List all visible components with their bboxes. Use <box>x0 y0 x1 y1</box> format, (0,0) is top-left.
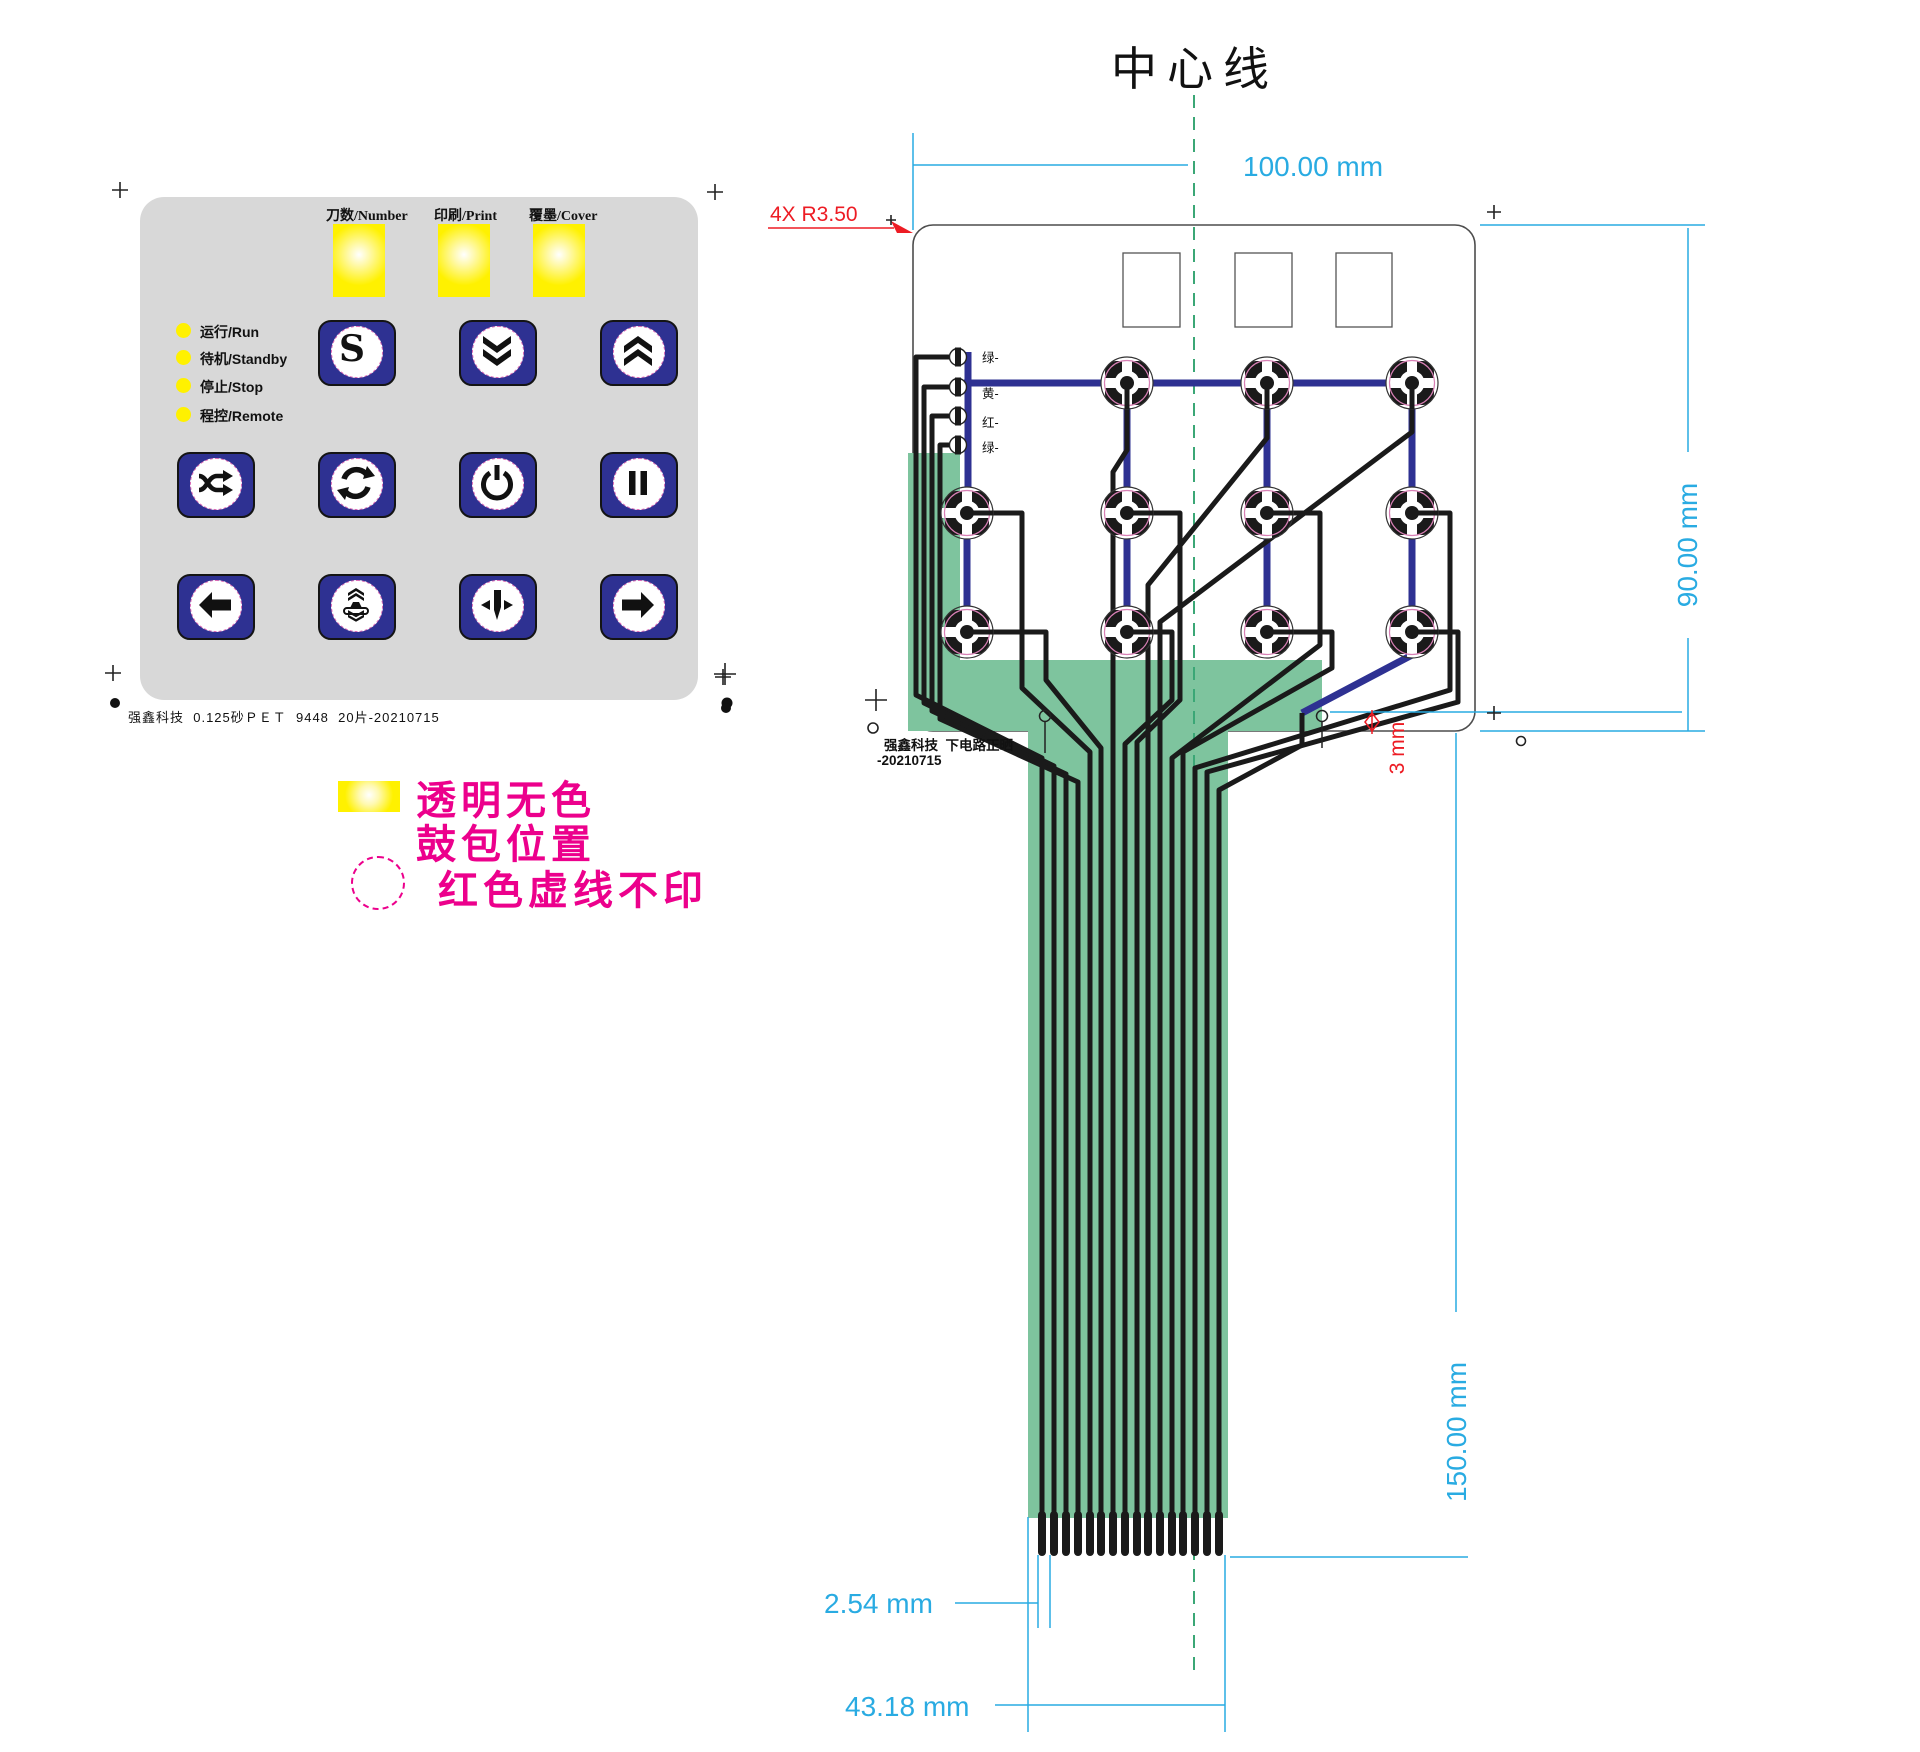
membrane-switch-design-sheet: 刀数/Number 印刷/Print 覆墨/Cover 运行/Run 待机/St… <box>0 0 1920 1752</box>
dim-pitch-label: 2.54 mm <box>824 1588 933 1619</box>
circuit-stamp-note: 强鑫科技 下电路正晒 -20210715 <box>877 737 1014 768</box>
dim-height-label: 90.00 mm <box>1672 483 1703 608</box>
corner-radius-arrow <box>891 221 913 233</box>
dim-width-label: 100.00 mm <box>1243 151 1383 182</box>
dim-tail-width-label: 43.18 mm <box>845 1691 970 1722</box>
svg-text:绿-: 绿- <box>982 350 999 365</box>
svg-text:红-: 红- <box>982 415 999 430</box>
svg-text:绿-: 绿- <box>982 440 999 455</box>
registration-dot-keypad <box>110 698 120 708</box>
registration-dot-keypad-right <box>721 703 731 713</box>
svg-text:黄-: 黄- <box>982 387 999 401</box>
connector-fingers <box>1042 1515 1219 1552</box>
svg-text:强鑫科技 下电路正晒: 强鑫科技 下电路正晒 <box>884 737 1014 753</box>
centerline-title: 中心线 <box>1111 43 1279 95</box>
corner-radius-callout: 4X R3.50 <box>770 203 858 226</box>
circuit-drawing: 中心线 <box>0 0 1920 1752</box>
svg-text:3 mm: 3 mm <box>1386 722 1409 775</box>
dim-tail-length-label: 150.00 mm <box>1441 1362 1472 1502</box>
svg-text:-20210715: -20210715 <box>877 753 942 768</box>
